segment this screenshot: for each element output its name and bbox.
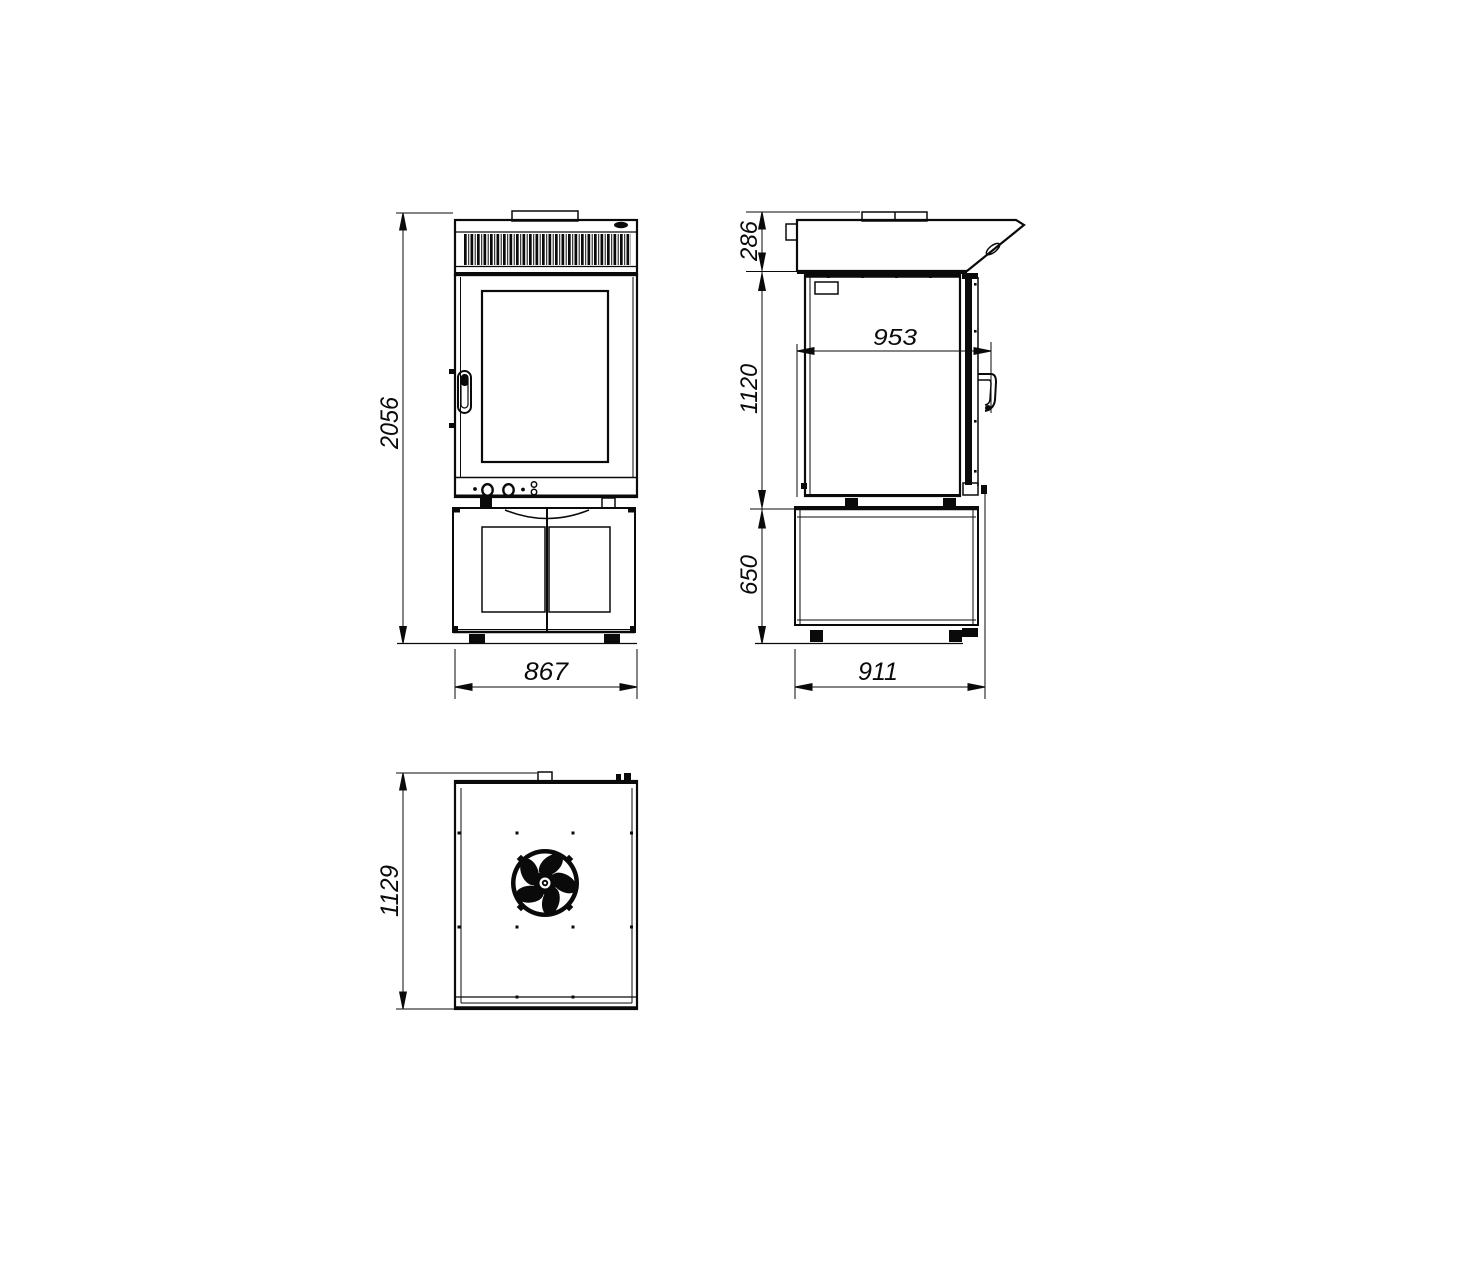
oven-foot-right: [602, 498, 615, 508]
stand-bracket: [962, 628, 978, 637]
stand-foot-right: [949, 630, 962, 642]
dim-front-overall-width: 867: [524, 658, 569, 686]
control-knob-1: [482, 484, 492, 496]
side-oven-body: [805, 275, 960, 496]
side-stand: [795, 507, 978, 625]
door-hinge-bottom: [449, 423, 455, 428]
drawing-sheet: 2056 867: [0, 0, 1467, 1284]
cabinet-door-left: [482, 527, 545, 612]
dim-front-overall-height: 2056: [376, 397, 404, 450]
dim-side-stand-depth: 911: [858, 658, 898, 686]
hood-tab: [786, 224, 797, 240]
hood-grille: [464, 234, 631, 265]
top-view: [455, 772, 637, 1009]
front-view: [397, 211, 637, 644]
side-oven-foot-left: [845, 498, 858, 507]
front-dimensions: 2056 867: [376, 213, 637, 699]
control-panel: [455, 478, 637, 496]
pilot-lamp-bottom: [531, 489, 536, 494]
dim-side-stand-height: 650: [736, 554, 763, 595]
dim-side-inner-depth: 953: [873, 324, 917, 350]
pilot-lamp-top: [531, 482, 536, 487]
rating-plate: [815, 282, 838, 294]
oven-door-handle: [458, 371, 471, 413]
oven-foot-left: [480, 498, 492, 508]
cabinet-door-right: [549, 527, 610, 612]
stand-foot-left: [810, 630, 823, 642]
control-knob-2: [503, 484, 513, 496]
cabinet-foot-right: [604, 634, 620, 643]
dim-side-body-height: 1120: [736, 363, 763, 414]
dim-top-overall-depth: 1129: [376, 865, 404, 917]
indicator-dot: [473, 487, 477, 491]
door-edge-rail: [965, 277, 972, 485]
fan-icon: [511, 849, 580, 917]
hood-vent-cap: [614, 222, 628, 228]
technical-drawing: 2056 867: [0, 0, 1467, 1284]
side-view: [755, 212, 1024, 644]
top-chimney: [538, 772, 552, 781]
dim-side-hood-height: 286: [736, 220, 763, 262]
cabinet-foot-left: [469, 634, 485, 643]
indicator-dot-2: [521, 488, 525, 492]
side-hood: [797, 220, 1024, 271]
oven-door-window: [482, 291, 608, 462]
side-door-handle: [978, 374, 996, 411]
side-oven-foot-right: [943, 498, 956, 507]
door-hinge-top: [449, 369, 455, 374]
